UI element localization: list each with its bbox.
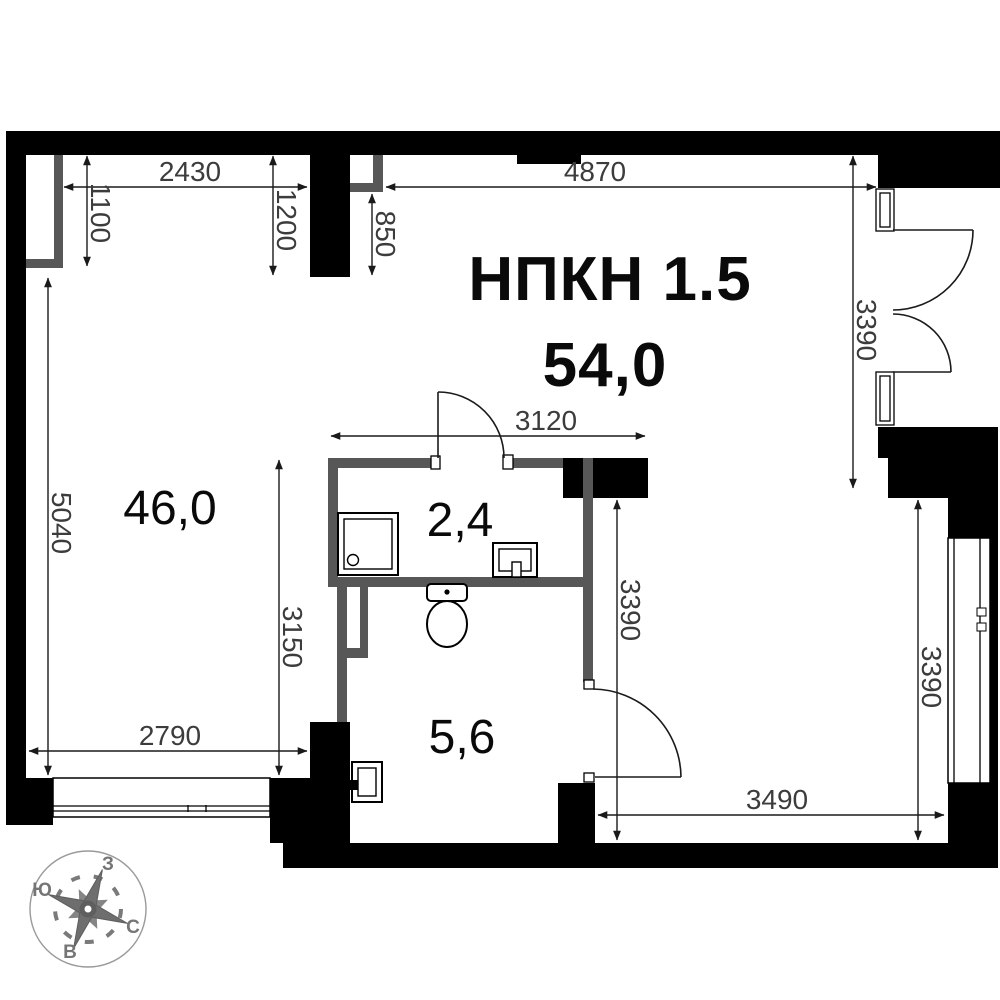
- bath-wall-top-left: [328, 458, 433, 468]
- shaft-wall-horizontal: [26, 259, 63, 268]
- dim-3490: 3490: [746, 784, 808, 815]
- wall-right-d: [948, 783, 998, 843]
- room-area-hall: 5,6: [429, 711, 496, 764]
- dim-3390-window: 3390: [916, 646, 947, 708]
- compass-east: В: [63, 942, 77, 963]
- wall-box: [347, 762, 382, 802]
- dim-3390-hall: 3390: [615, 579, 646, 641]
- bath-wall-right: [583, 458, 593, 682]
- compass-west: З: [102, 854, 114, 875]
- bath-wall-left: [328, 458, 338, 587]
- bath-door: [431, 392, 513, 469]
- dim-5040: 5040: [46, 492, 77, 554]
- hall-door-arc: [593, 689, 681, 777]
- wall-top: [6, 131, 1000, 155]
- dim-3120: 3120: [515, 405, 577, 436]
- duct-wall-vertical: [360, 587, 368, 648]
- dim-1200: 1200: [271, 189, 302, 251]
- wall-right-a: [878, 427, 998, 458]
- entry-door-arc-bottom: [893, 314, 951, 372]
- pier-hall-door: [558, 783, 595, 868]
- wall-bottom: [283, 843, 998, 868]
- compass-rose: З Ю С В: [30, 851, 146, 967]
- unit-title: НПКН 1.5: [468, 245, 751, 314]
- window-right: [948, 538, 990, 783]
- shaft-wall-vertical: [54, 155, 63, 268]
- wall-right-edge: [990, 538, 998, 783]
- labels: НПКН 1.5 54,0 46,0 2,4 5,6: [123, 245, 751, 764]
- wall-left: [6, 131, 26, 778]
- room-area-main: 46,0: [123, 482, 216, 535]
- pier-hall-left: [310, 722, 350, 843]
- dim-2790: 2790: [139, 720, 201, 751]
- hall-door-jamb-bottom: [584, 773, 594, 782]
- wall-right-b: [888, 458, 998, 498]
- compass-north: С: [126, 917, 140, 938]
- entry-jamb-bottom-inner: [880, 376, 890, 421]
- pier-window-right: [270, 778, 310, 843]
- dim-3150: 3150: [277, 606, 308, 668]
- dim-4870: 4870: [564, 156, 626, 187]
- entry-double-door: [876, 189, 973, 425]
- shower-tray: [338, 513, 398, 575]
- floor-plan-page: 2430 4870 1100 1200 850 3390 3120 5040 3…: [0, 0, 1000, 1000]
- hall-wall-left: [337, 587, 347, 722]
- toilet: [427, 584, 467, 647]
- dim-1100: 1100: [85, 183, 116, 243]
- floor-plan-svg: 2430 4870 1100 1200 850 3390 3120 5040 3…: [0, 0, 1000, 1000]
- bath-door-arc: [438, 392, 504, 458]
- entry-door-arc-top: [893, 230, 973, 310]
- pier-top: [310, 155, 350, 277]
- compass-south: Ю: [32, 880, 52, 901]
- top-niche-horizontal: [350, 183, 383, 192]
- window-bottom: [53, 778, 270, 817]
- compass-hub-hole: [85, 906, 92, 913]
- dim-3390-entry: 3390: [851, 299, 882, 361]
- entry-jamb-top-inner: [880, 193, 890, 227]
- dim-850: 850: [370, 211, 401, 258]
- total-area: 54,0: [543, 331, 668, 400]
- bath-corner-block: [563, 458, 648, 498]
- sink: [493, 543, 537, 577]
- wall-right-c: [948, 498, 998, 538]
- corner-bottom-left: [6, 778, 53, 825]
- hall-door-jamb-top: [584, 680, 594, 689]
- bath-wall-top-right: [513, 458, 563, 468]
- room-area-bath: 2,4: [427, 494, 494, 547]
- hall-door: [584, 680, 681, 782]
- wall-top-right-block: [878, 131, 1000, 188]
- dim-2430: 2430: [159, 156, 221, 187]
